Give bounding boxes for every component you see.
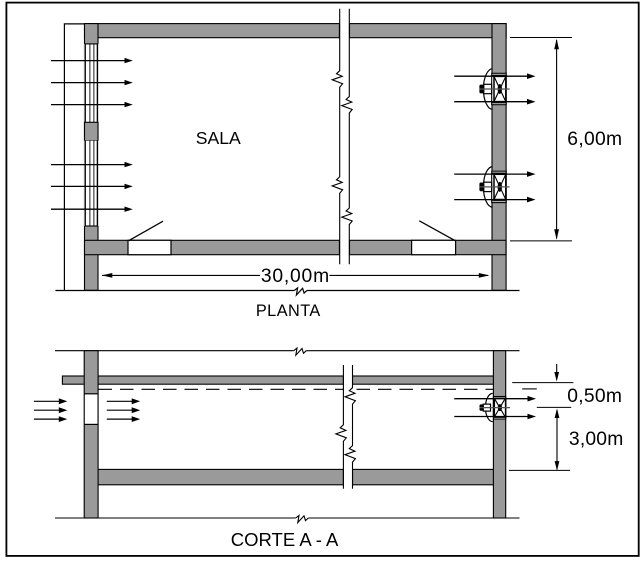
svg-text:30,00m: 30,00m xyxy=(261,266,330,287)
svg-text:6,00m: 6,00m xyxy=(567,129,622,150)
svg-text:CORTE A - A: CORTE A - A xyxy=(231,529,339,550)
svg-text:PLANTA: PLANTA xyxy=(256,302,321,320)
svg-text:SALA: SALA xyxy=(196,128,241,148)
svg-text:0,50m: 0,50m xyxy=(567,386,622,407)
svg-text:3,00m: 3,00m xyxy=(569,429,624,450)
